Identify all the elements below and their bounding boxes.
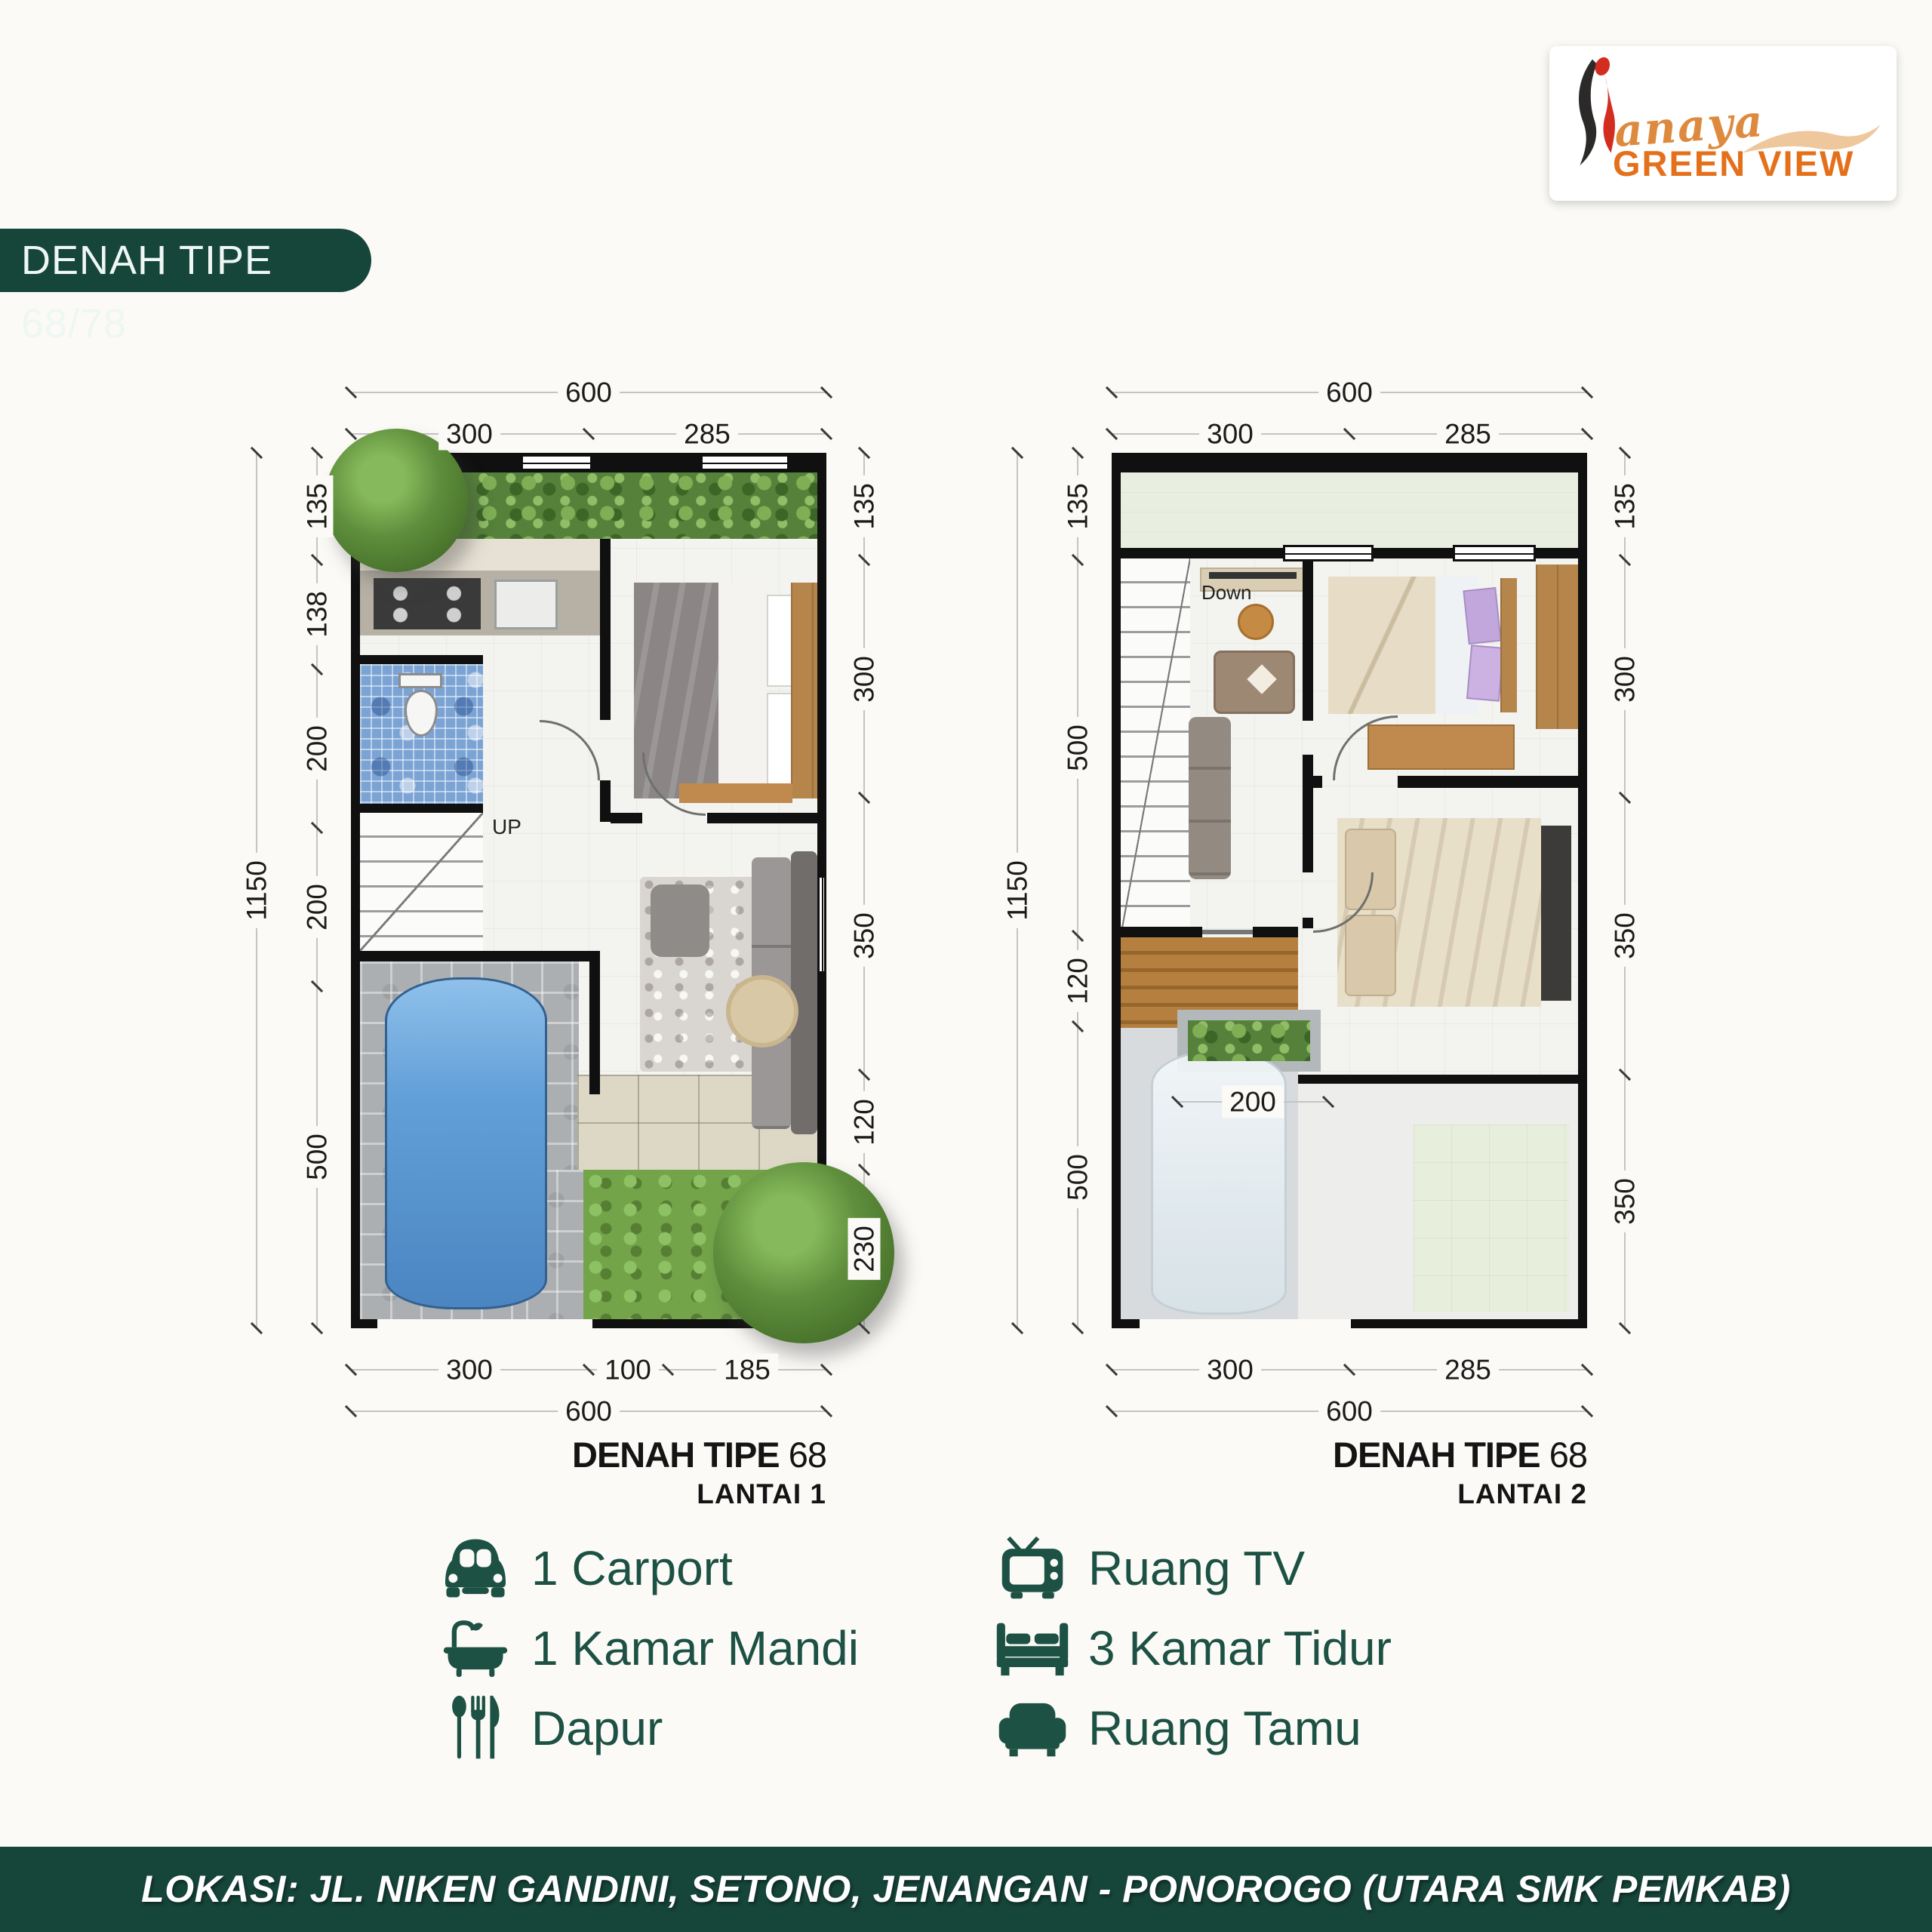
legend-left-column: 1 Carport 1 Kamar Mandi Dapur — [438, 1532, 859, 1764]
legend-item-kamar-tidur: 3 Kamar Tidur — [995, 1612, 1392, 1684]
page-title-banner: DENAH TIPE 68/78 — [0, 229, 371, 292]
plan1-bed-pillow — [767, 693, 792, 785]
plan2-caption: DENAH TIPE 68 LANTAI 2 — [1112, 1434, 1587, 1510]
plan2-stairs-label: Down — [1201, 581, 1251, 605]
plan1-stairs-diagonal — [360, 813, 483, 951]
bed-icon — [995, 1614, 1070, 1683]
plan2-window — [1453, 545, 1536, 561]
plan1-window — [521, 454, 592, 471]
plan1-bed-headboard — [791, 583, 817, 798]
plan2-wall — [1398, 776, 1587, 788]
footer-location: LOKASI: JL. NIKEN GANDINI, SETONO, JENAN… — [0, 1847, 1932, 1932]
dim-label: 1150 — [241, 853, 273, 928]
plan1-tree-back — [325, 429, 468, 572]
plan2-stairs-diagonal — [1121, 558, 1190, 936]
dim-label: 135 — [1609, 475, 1641, 537]
dim-label: 600 — [558, 1395, 620, 1428]
dim-label: 300 — [438, 418, 500, 451]
plan2-bed2-pillow — [1345, 915, 1396, 996]
plan2-sliding-door — [1202, 930, 1253, 934]
brand-logo: anaya GREEN VIEW — [1549, 46, 1897, 201]
dim-label: 285 — [676, 418, 738, 451]
dim-label: 135 — [1062, 475, 1094, 537]
plan1-wall — [351, 472, 360, 1328]
dim-label: 600 — [1318, 377, 1380, 409]
legend-item-dapur: Dapur — [438, 1692, 859, 1764]
legend-label: Dapur — [531, 1700, 663, 1756]
dim-label: 135 — [848, 475, 881, 537]
plan2-bed1-pillow — [1466, 645, 1504, 702]
plan1-coffee-table — [726, 975, 798, 1048]
plan1-sink — [494, 580, 558, 629]
dim-label: 200 — [1222, 1086, 1284, 1118]
dim-label: 1150 — [1001, 853, 1034, 928]
dim-label: 350 — [1609, 905, 1641, 967]
dim-label: 600 — [558, 377, 620, 409]
dim-label: 100 — [597, 1354, 659, 1386]
plan2-bed1-headboard — [1500, 578, 1517, 712]
plan2-tv — [1209, 572, 1297, 579]
plan2-bed1-pillow — [1463, 587, 1501, 645]
dim-label: 500 — [1062, 717, 1094, 779]
plan1-caption-number: 68 — [789, 1435, 826, 1475]
plan1-caption-title: DENAH TIPE — [572, 1435, 780, 1475]
plan1-wall — [589, 961, 600, 1094]
plan1-wall — [351, 951, 600, 961]
plan1-caption-floor: LANTAI 1 — [351, 1478, 826, 1510]
plan1-wall — [707, 813, 817, 823]
plan1-sofa-back — [791, 851, 817, 1134]
legend-item-kamar-mandi: 1 Kamar Mandi — [438, 1612, 859, 1684]
plan2-caption-floor: LANTAI 2 — [1112, 1478, 1587, 1510]
dim-label: 185 — [716, 1354, 778, 1386]
legend-label: Ruang Tamu — [1088, 1700, 1361, 1756]
dim-label: 285 — [1437, 1354, 1499, 1386]
legend-label: 3 Kamar Tidur — [1088, 1620, 1392, 1676]
dim-label: 230 — [848, 1218, 881, 1280]
plan1-car — [385, 977, 547, 1309]
dim-label: 120 — [848, 1091, 881, 1153]
dim-label: 300 — [848, 648, 881, 710]
dim-label: 300 — [1199, 1354, 1261, 1386]
plan2-roof-strip — [1121, 472, 1578, 548]
plan2-long-sofa — [1189, 717, 1231, 879]
plan2-bed1-blanket — [1328, 577, 1435, 714]
plan2-caption-title: DENAH TIPE — [1333, 1435, 1540, 1475]
plan2-wall — [1298, 1075, 1578, 1084]
tv-icon — [995, 1534, 1070, 1603]
plan1-carport-opening — [377, 1319, 592, 1328]
plan1-wall — [600, 780, 611, 822]
bathtub-icon — [438, 1614, 513, 1683]
plan1-stairs-label: UP — [492, 815, 521, 839]
plan2-wall — [1578, 472, 1587, 1328]
brand-flame-icon — [1571, 55, 1617, 178]
car-icon — [438, 1534, 513, 1603]
plan1-window — [817, 875, 826, 974]
plan2-carport-opening — [1140, 1319, 1351, 1328]
plan1-wall — [360, 655, 483, 664]
plan2-wall — [1303, 755, 1313, 776]
plan2-wall — [1253, 927, 1298, 937]
dim-label: 120 — [1062, 950, 1094, 1012]
brand-title-text: GREEN VIEW — [1613, 143, 1854, 184]
plan2-wardrobe — [1536, 565, 1578, 729]
legend-right-column: Ruang TV 3 Kamar Tidur Ruang Tamu — [995, 1532, 1392, 1764]
plan1-wall — [600, 539, 611, 720]
plan2-bed2-headboard — [1541, 826, 1571, 1001]
plan1-bed-sheet — [718, 583, 767, 798]
dim-label: 200 — [301, 718, 334, 780]
plan2-window — [1283, 545, 1374, 561]
plan2-caption-number: 68 — [1549, 1435, 1587, 1475]
plan2-wall — [1112, 453, 1587, 472]
plan2-wall — [1303, 558, 1313, 721]
plan1-stove — [374, 578, 481, 629]
plan2-wall — [1112, 472, 1121, 1328]
legend-item-ruang-tv: Ruang TV — [995, 1532, 1392, 1604]
plan2-planter-plants — [1188, 1020, 1310, 1061]
plan2-green-tiles — [1414, 1124, 1569, 1312]
plan2-side-table — [1238, 604, 1274, 640]
dim-label: 300 — [438, 1354, 500, 1386]
dim-label: 135 — [301, 475, 334, 537]
footer-banner: LOKASI: JL. NIKEN GANDINI, SETONO, JENAN… — [0, 1847, 1932, 1932]
cutlery-icon — [438, 1694, 513, 1763]
legend-label: Ruang TV — [1088, 1540, 1305, 1596]
dim-label: 350 — [848, 905, 881, 967]
legend-item-carport: 1 Carport — [438, 1532, 859, 1604]
sofa-icon — [995, 1694, 1070, 1763]
plan2-wall — [1303, 788, 1313, 872]
dim-label: 500 — [1062, 1146, 1094, 1208]
dim-label: 138 — [301, 583, 334, 645]
plan1-toilet — [398, 673, 442, 688]
legend-item-ruang-tamu: Ruang Tamu — [995, 1692, 1392, 1764]
dim-label: 285 — [1437, 418, 1499, 451]
plan1-armchair — [651, 884, 709, 957]
legend-label: 1 Carport — [531, 1540, 733, 1596]
plan1-caption: DENAH TIPE 68 LANTAI 1 — [351, 1434, 826, 1510]
dim-label: 200 — [301, 876, 334, 938]
dim-label: 300 — [1609, 648, 1641, 710]
plan2-wall — [1303, 918, 1313, 928]
dim-label: 500 — [301, 1126, 334, 1188]
plan1-bed-pillow — [767, 595, 792, 687]
plan2-wall — [1303, 776, 1322, 788]
plan1-wall — [611, 813, 642, 823]
page-title: DENAH TIPE 68/78 — [21, 229, 371, 355]
plan1-wall — [360, 804, 483, 813]
legend-label: 1 Kamar Mandi — [531, 1620, 859, 1676]
dim-label: 600 — [1318, 1395, 1380, 1428]
plan2-wall — [1112, 927, 1202, 937]
plan1-window — [700, 454, 789, 471]
dim-label: 350 — [1609, 1171, 1641, 1232]
dim-label: 300 — [1199, 418, 1261, 451]
